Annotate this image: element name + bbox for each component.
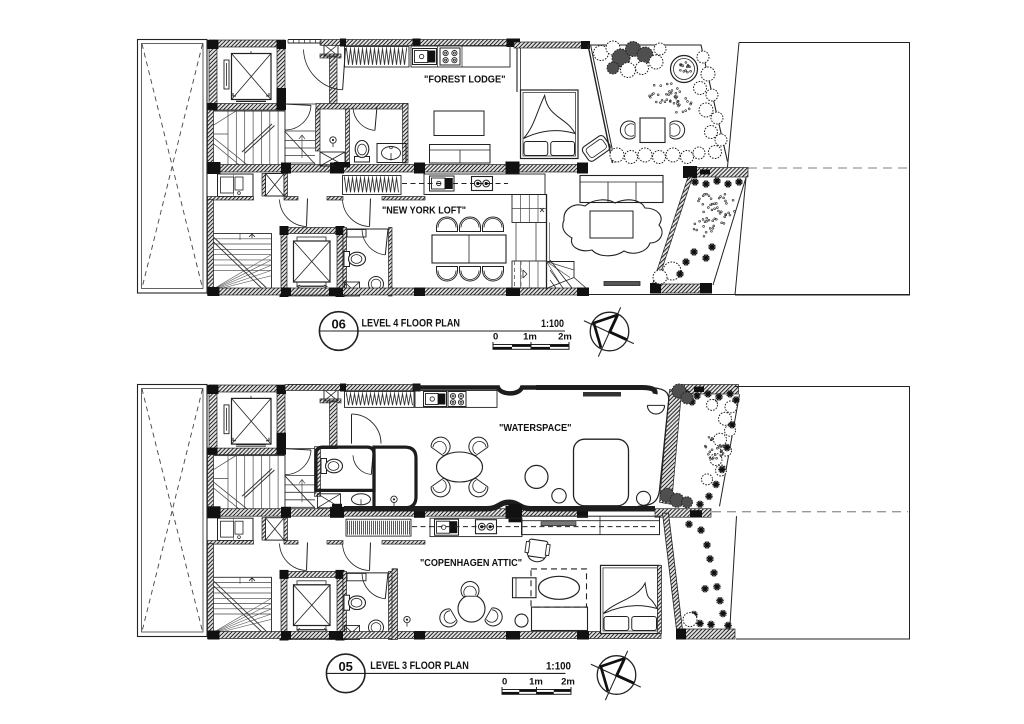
svg-text:05: 05 <box>338 659 352 674</box>
svg-text:"NEW YORK LOFT": "NEW YORK LOFT" <box>382 205 466 217</box>
svg-text:2m: 2m <box>558 332 572 343</box>
svg-text:"COPENHAGEN ATTIC": "COPENHAGEN ATTIC" <box>420 557 522 569</box>
svg-text:1:100: 1:100 <box>546 661 571 673</box>
svg-text:1m: 1m <box>529 677 543 688</box>
svg-text:1:100: 1:100 <box>541 318 564 330</box>
svg-text:1m: 1m <box>523 332 537 343</box>
svg-text:"WATERSPACE": "WATERSPACE" <box>499 422 572 434</box>
svg-text:0: 0 <box>493 332 498 343</box>
svg-text:"FOREST LODGE": "FOREST LODGE" <box>424 74 506 86</box>
svg-text:LEVEL 3 FLOOR PLAN: LEVEL 3 FLOOR PLAN <box>370 660 469 672</box>
svg-text:0: 0 <box>502 677 507 688</box>
svg-text:LEVEL 4 FLOOR PLAN: LEVEL 4 FLOOR PLAN <box>362 318 461 330</box>
svg-text:2m: 2m <box>561 677 575 688</box>
svg-text:06: 06 <box>331 317 345 332</box>
